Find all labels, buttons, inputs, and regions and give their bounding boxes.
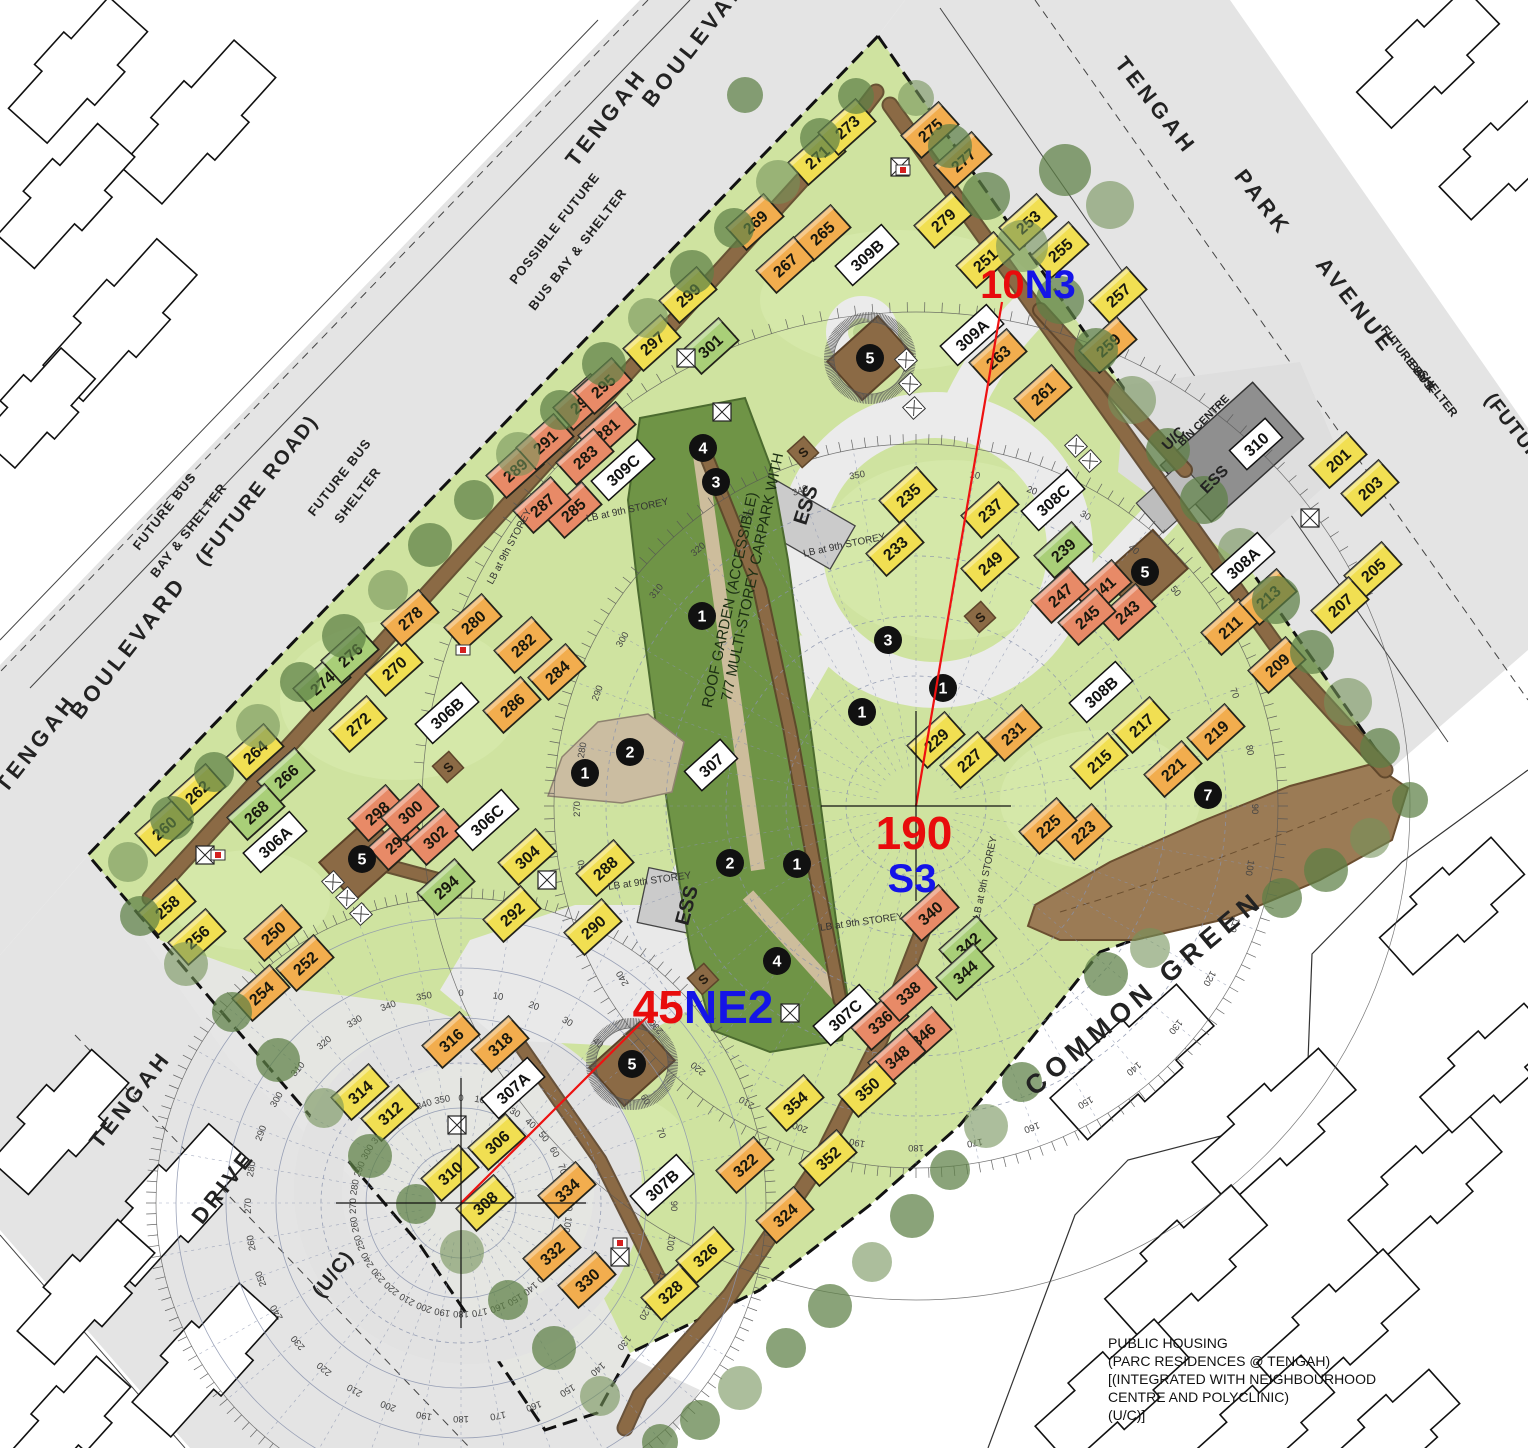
tree [628, 298, 668, 338]
survey-degree-label: 0 [458, 988, 463, 999]
red-dot [617, 1240, 623, 1246]
tree [1290, 630, 1334, 674]
survey-degree-label: 80 [1243, 744, 1256, 756]
tree [1108, 376, 1156, 424]
annotation-part: NE2 [684, 981, 773, 1033]
tree [440, 1230, 484, 1274]
marker-number: 3 [712, 475, 721, 492]
tree [1086, 181, 1134, 229]
marker-number: 2 [626, 745, 635, 762]
tree [800, 118, 840, 158]
tree [766, 1328, 806, 1368]
circled-marker-4: 4 [689, 434, 717, 462]
tree [964, 1104, 1008, 1148]
lift-core-icon [713, 403, 731, 421]
marker-number: 2 [726, 856, 735, 873]
survey-annotation: 10N3 [980, 263, 1076, 307]
tree [304, 1088, 344, 1128]
circled-marker-3: 3 [702, 468, 730, 496]
circled-marker-2: 2 [716, 849, 744, 877]
shelter-icon [456, 645, 470, 655]
marker-number: 5 [628, 1057, 637, 1074]
marker-number: 1 [793, 857, 802, 874]
circled-marker-4: 4 [763, 947, 791, 975]
circled-marker-7: 7 [1194, 781, 1222, 809]
tree [582, 342, 626, 386]
tree [212, 992, 252, 1032]
marker-number: 7 [1204, 788, 1213, 805]
tree [930, 1150, 970, 1190]
red-dot [900, 167, 906, 173]
marker-number: 5 [1141, 565, 1150, 582]
site-plan-svg: 0102030405060708090100110120130140150160… [0, 0, 1528, 1448]
marker-number: 1 [698, 609, 707, 626]
circled-marker-5: 5 [856, 344, 884, 372]
marker-number: 4 [773, 954, 782, 971]
tree [532, 1326, 576, 1370]
tree [1262, 878, 1302, 918]
marker-number: 4 [699, 441, 708, 458]
tree [718, 1366, 762, 1410]
survey-degree-label: 10 [492, 990, 504, 1003]
tree [852, 1242, 892, 1282]
tree [396, 1184, 436, 1224]
lift-core-icon [1301, 509, 1319, 527]
marker-number: 5 [358, 852, 367, 869]
tree [1304, 848, 1348, 892]
tree [1392, 782, 1428, 818]
public-housing-text: PUBLIC HOUSING [1108, 1335, 1228, 1351]
tree [1074, 328, 1118, 372]
survey-degree-label: 270 [572, 801, 583, 817]
tree [150, 796, 194, 840]
tree [808, 1284, 852, 1328]
marker-number: 1 [939, 681, 948, 698]
lift-core-icon [448, 1116, 466, 1134]
lift-core-icon [781, 1004, 799, 1022]
tree [496, 432, 540, 476]
public-housing-text: (PARC RESIDENCES @ TENGAH) [1108, 1353, 1330, 1369]
annotation-part: S3 [888, 857, 937, 901]
tree [256, 1038, 300, 1082]
survey-annotation: 190 [876, 807, 953, 859]
lift-core-icon [677, 349, 695, 367]
survey-degree-label: 90 [1249, 804, 1260, 815]
survey-degree-label: 10 [969, 469, 981, 482]
public-housing-text: [(INTEGRATED WITH NEIGHBOURHOOD [1108, 1371, 1376, 1387]
tree [580, 1376, 620, 1416]
tree [488, 1280, 528, 1320]
tree [727, 77, 763, 113]
tree [368, 570, 408, 610]
tree [322, 614, 366, 658]
tree [1084, 952, 1128, 996]
tree [962, 172, 1010, 220]
tree [236, 704, 280, 748]
lift-core-icon [611, 1248, 629, 1266]
tree [1039, 144, 1091, 196]
circled-marker-5: 5 [618, 1050, 646, 1078]
shelter-icon [896, 165, 910, 175]
marker-number: 1 [858, 705, 867, 722]
circled-marker-2: 2 [616, 738, 644, 766]
red-dot [215, 852, 221, 858]
red-dot [460, 647, 466, 653]
survey-degree-label: 90 [668, 1201, 679, 1212]
circled-marker-1: 1 [929, 674, 957, 702]
tree [838, 78, 874, 114]
tree [280, 662, 320, 702]
circled-marker-5: 5 [1131, 558, 1159, 586]
public-housing-text: (U/C)] [1108, 1407, 1145, 1423]
annotation-part: N3 [1025, 263, 1076, 307]
circled-marker-1: 1 [571, 759, 599, 787]
circled-marker-1: 1 [688, 602, 716, 630]
tree [890, 1194, 934, 1238]
tree [108, 842, 148, 882]
marker-number: 1 [581, 766, 590, 783]
shelter-icon [211, 850, 225, 860]
tree [680, 1400, 720, 1440]
circled-marker-3: 3 [874, 626, 902, 654]
marker-number: 3 [884, 633, 893, 650]
tree [1350, 818, 1390, 858]
survey-annotation: 45NE2 [633, 981, 774, 1033]
tree [348, 1134, 392, 1178]
survey-degree-label: 270 [348, 1198, 359, 1214]
tree [540, 390, 580, 430]
annotation-part: 190 [876, 807, 953, 859]
circled-marker-1: 1 [783, 850, 811, 878]
tree [1252, 576, 1300, 624]
shelter-icon [613, 1238, 627, 1248]
tree [714, 208, 754, 248]
lift-core-icon [538, 871, 556, 889]
tree [898, 80, 934, 116]
tree [408, 523, 452, 567]
tree [756, 160, 800, 204]
annotation-part: 10 [980, 263, 1025, 307]
tree [120, 896, 160, 936]
tree [164, 942, 208, 986]
marker-number: 5 [866, 351, 875, 368]
survey-annotation: S3 [888, 857, 937, 901]
tree [1324, 678, 1372, 726]
tree [928, 124, 972, 168]
tree [454, 480, 494, 520]
tree [194, 752, 234, 792]
circled-marker-1: 1 [848, 698, 876, 726]
tree [1360, 728, 1400, 768]
public-housing-text: CENTRE AND POLYCLINIC) [1108, 1389, 1289, 1405]
circled-marker-5: 5 [348, 845, 376, 873]
site-plan-map: 0102030405060708090100110120130140150160… [0, 0, 1528, 1448]
survey-degree-label: 180 [453, 1413, 469, 1424]
survey-degree-label: 270 [243, 1198, 254, 1214]
survey-degree-label: 180 [908, 1142, 924, 1153]
tree [670, 250, 714, 294]
annotation-part: 45 [633, 981, 684, 1033]
